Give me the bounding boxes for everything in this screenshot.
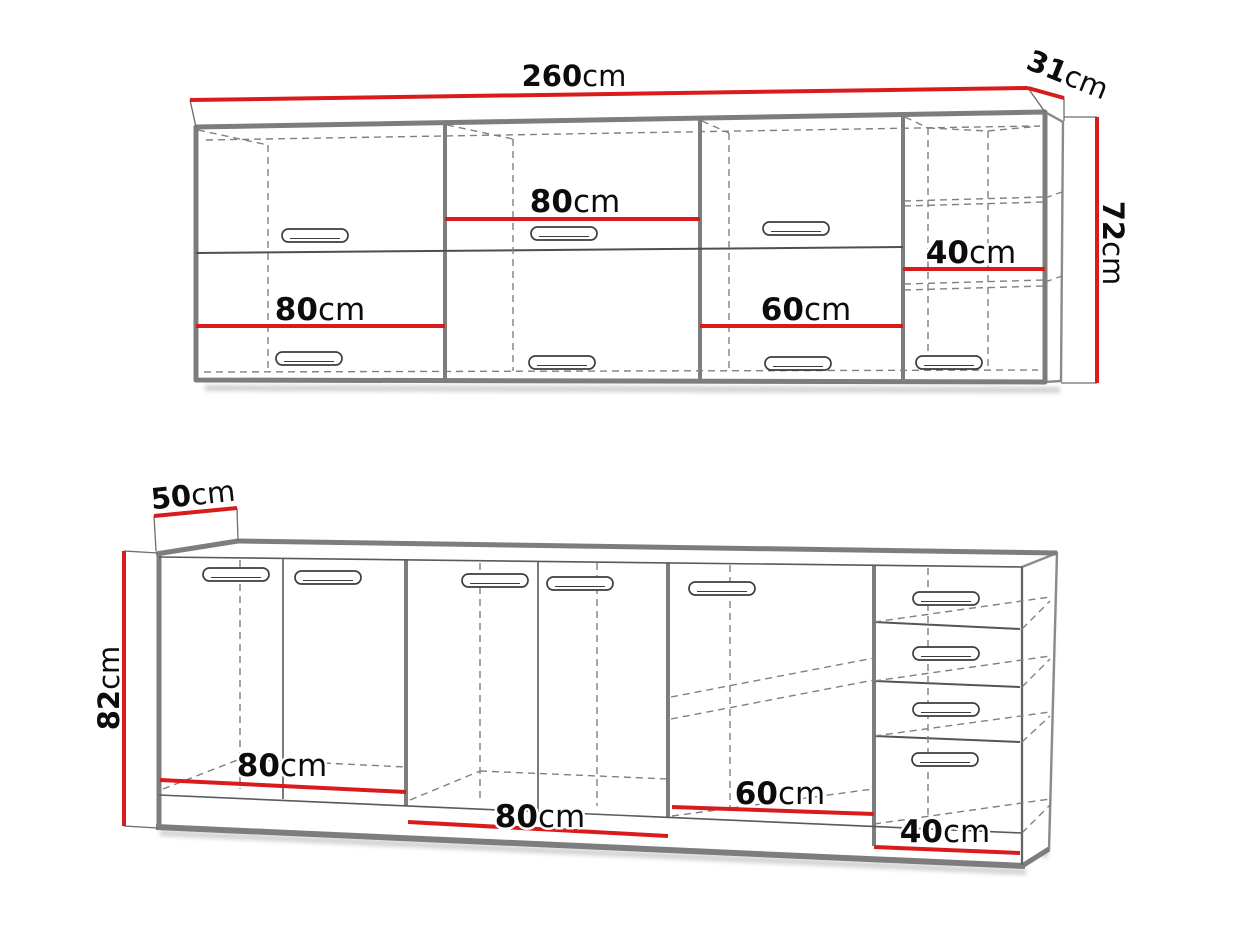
wall-height-label: 72cm [1096, 201, 1130, 286]
base-cabinet-4-width-label: 40cm [900, 814, 990, 850]
kitchen-dimension-diagram: 260cm 31cm 72cm 80cm 80cm 60cm 40cm [0, 0, 1237, 928]
base-cabinet-1-width-label: 80cm [237, 748, 327, 784]
handle-icon [913, 647, 979, 660]
wall-cabinet-1-width-label: 80cm [275, 292, 365, 328]
handle-icon [765, 357, 831, 370]
handle-icon [531, 227, 597, 240]
wall-cabinet-2-width-label: 80cm [530, 184, 620, 220]
base-cabinets-row: 50cm 82cm 80cm 80cm 60cm 40cm [92, 474, 1057, 866]
base-cabinet-2-width-label: 80cm [495, 799, 585, 835]
handle-icon [282, 229, 348, 242]
wall-depth-label: 31cm [1022, 43, 1113, 106]
handle-icon [916, 356, 982, 369]
wall-cabinet-4-width-label: 40cm [926, 235, 1016, 271]
handle-icon [295, 571, 361, 584]
base-cabinet-3-width-label: 60cm [735, 776, 825, 812]
cabinet-drawing-canvas: 260cm 31cm 72cm 80cm 80cm 60cm 40cm [0, 0, 1237, 928]
handle-icon [547, 577, 613, 590]
handle-icon [276, 352, 342, 365]
base-height-label: 82cm [92, 646, 126, 731]
wall-total-width-label: 260cm [522, 59, 627, 93]
handle-icon [912, 753, 978, 766]
wall-cabinets-row: 260cm 31cm 72cm 80cm 80cm 60cm 40cm [190, 43, 1130, 383]
handle-icon [462, 574, 528, 587]
wall-cabinet-3-width-label: 60cm [761, 292, 851, 328]
handle-icon [203, 568, 269, 581]
handle-icon [689, 582, 755, 595]
handle-icon [913, 592, 979, 605]
handle-icon [763, 222, 829, 235]
handle-icon [913, 703, 979, 716]
handle-icon [529, 356, 595, 369]
